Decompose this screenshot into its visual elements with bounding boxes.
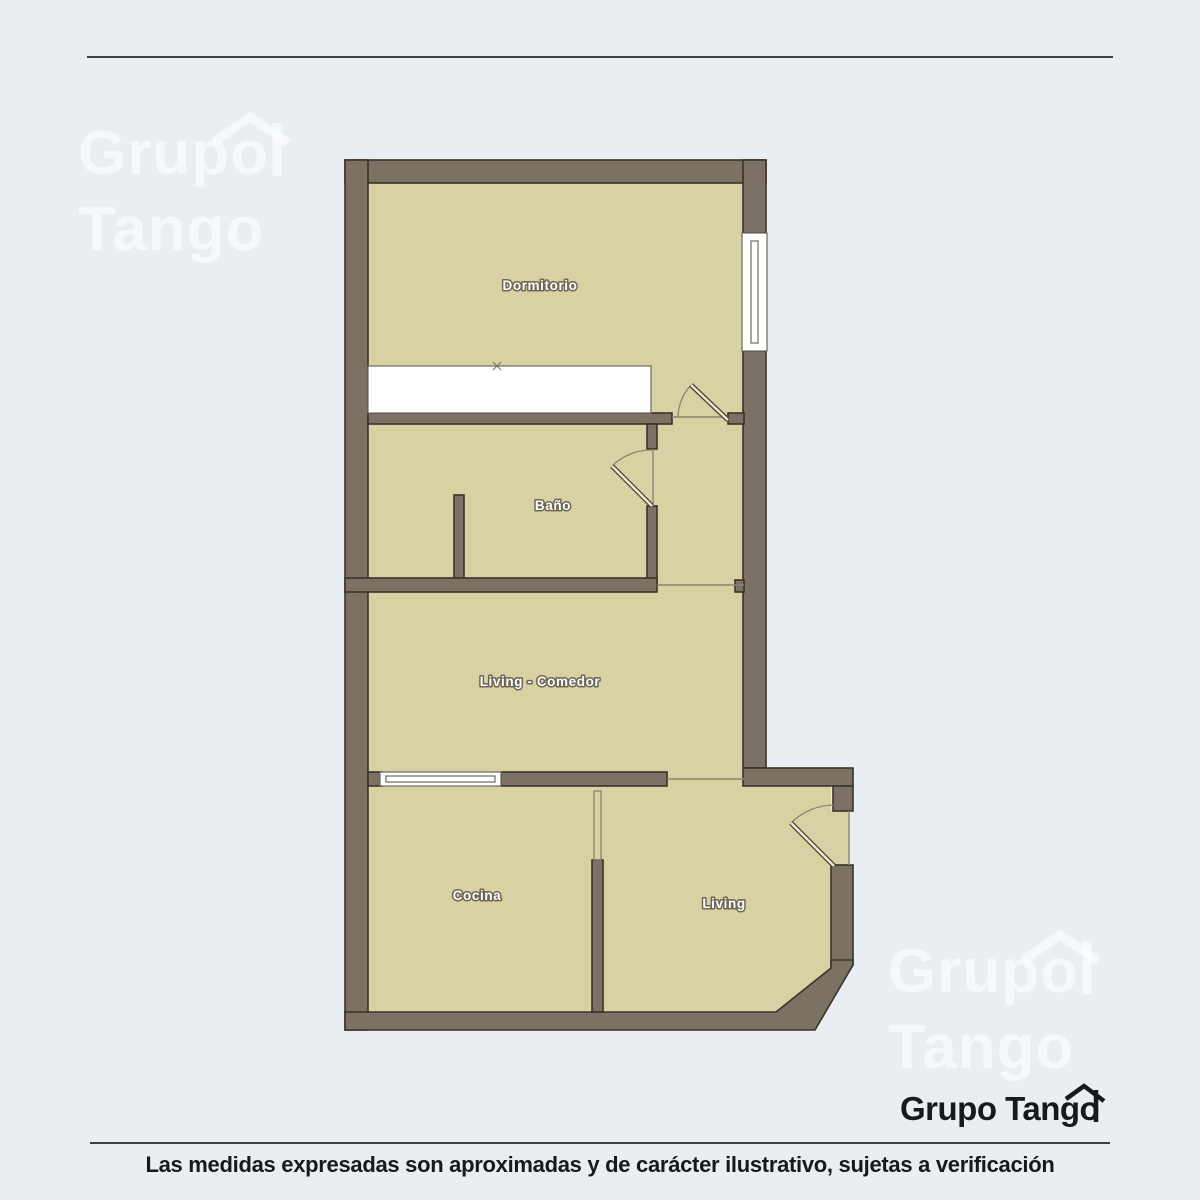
bottom-separator-line [90,1142,1110,1144]
room-label-cocina: Cocina [453,888,502,903]
wall-extension-corner [833,786,853,811]
room-label-living-comedor: Living - Comedor [480,674,601,689]
floor-area [368,183,849,1012]
wall-living-comedor-bottom [501,772,667,786]
wall-right-upper [743,160,766,233]
wall-extension-right [831,865,853,965]
room-label-bano: Baño [535,498,571,513]
dormitorio-window-mullion [751,241,758,343]
wall-dormitorio-bottom [368,413,672,424]
wall-extension-top [743,768,853,786]
room-label-living: Living [702,896,745,911]
wall-top [345,160,766,183]
wall-hall-nub [735,580,744,592]
page-background: Grupo Tango Grupo Tango [0,0,1200,1200]
wall-cocina-living-divider [592,860,603,1012]
floor-plan: Dormitorio Baño Living - Comedor Cocina … [0,0,1200,1200]
company-logo: Grupo Tango [900,1082,1115,1137]
wall-dormitorio-door-jamb [728,413,744,424]
disclaimer-text: Las medidas expresadas son aproximadas y… [0,1152,1200,1178]
wall-bano-bottom [345,578,657,592]
balcony-door-floor [831,811,849,865]
dormitorio-closet [368,366,651,413]
company-logo-graphic: Grupo Tango [900,1082,1115,1132]
cocina-pass-window-mullion [386,776,495,782]
room-label-dormitorio: Dormitorio [503,278,578,293]
wall-bano-door-jamb [647,424,657,449]
wall-bano-right [647,506,657,584]
wall-left [345,160,368,1030]
wall-bano-partition [454,495,464,584]
wall-right-lower [743,351,766,768]
